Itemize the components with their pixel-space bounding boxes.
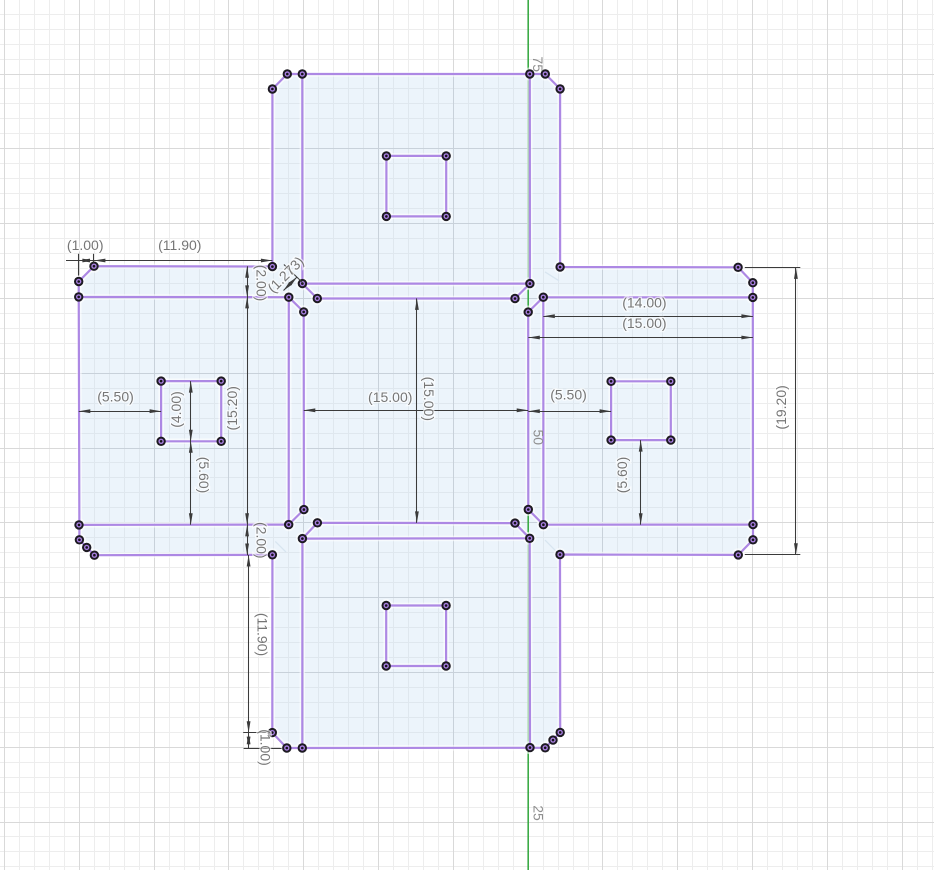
svg-text:(1.00): (1.00) xyxy=(67,237,104,253)
svg-text:25: 25 xyxy=(531,805,547,821)
svg-text:(15.00): (15.00) xyxy=(421,377,437,421)
svg-text:(5.60): (5.60) xyxy=(196,457,212,494)
svg-text:(19.20): (19.20) xyxy=(773,385,789,429)
svg-text:(11.90): (11.90) xyxy=(255,613,271,656)
svg-text:(15.00): (15.00) xyxy=(368,389,412,405)
svg-text:(5.50): (5.50) xyxy=(97,388,134,404)
svg-text:(1.00): (1.00) xyxy=(258,729,274,766)
svg-text:(14.00): (14.00) xyxy=(622,295,666,311)
svg-text:(11.90): (11.90) xyxy=(158,237,201,253)
svg-text:(5.60): (5.60) xyxy=(614,457,630,494)
svg-text:(2.00): (2.00) xyxy=(254,522,270,559)
svg-text:(15.00): (15.00) xyxy=(622,315,666,331)
svg-text:(15.20): (15.20) xyxy=(224,386,240,430)
svg-text:75: 75 xyxy=(530,56,546,72)
svg-text:(5.50): (5.50) xyxy=(550,387,587,403)
svg-text:50: 50 xyxy=(530,430,546,446)
svg-text:(4.00): (4.00) xyxy=(168,391,184,428)
